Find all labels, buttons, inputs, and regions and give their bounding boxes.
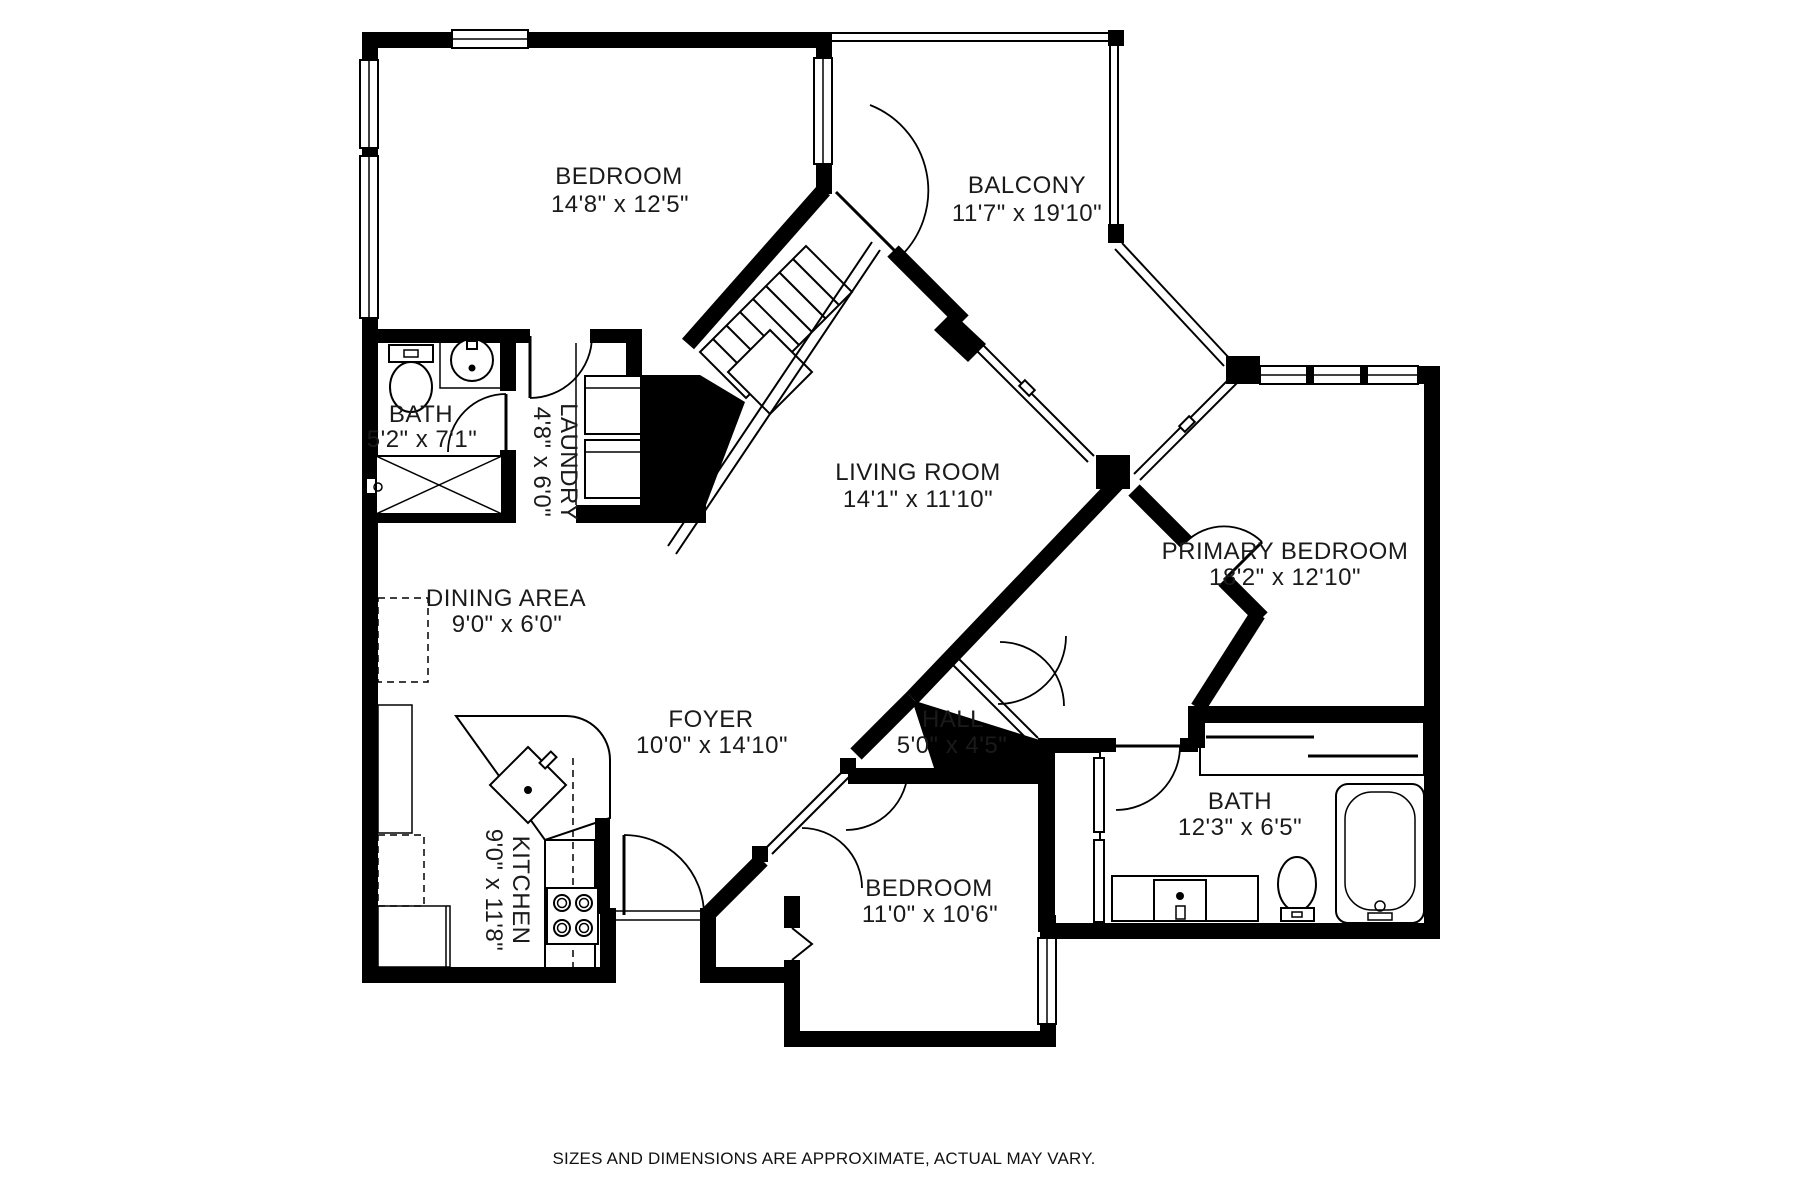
label-hall: HALL 5'0" x 4'5" xyxy=(897,706,1007,759)
linen-closet xyxy=(1054,752,1104,928)
bathtub-fixture xyxy=(1336,784,1424,923)
window-living-balcony xyxy=(964,332,1094,462)
svg-text:HALL: HALL xyxy=(922,706,984,733)
svg-text:10'0" x 14'10": 10'0" x 14'10" xyxy=(636,732,788,759)
svg-text:LIVING ROOM: LIVING ROOM xyxy=(835,459,1001,486)
window-bedroom2-right xyxy=(1038,938,1056,1024)
svg-text:PRIMARY BEDROOM: PRIMARY BEDROOM xyxy=(1162,538,1409,565)
floor-plan-canvas: BEDROOM 14'8" x 12'5" BALCONY 11'7" x 19… xyxy=(0,0,1800,1200)
door-foyer-closet-bifold xyxy=(792,928,812,960)
sink-fixture-bath1 xyxy=(440,339,500,388)
room-labels: BEDROOM 14'8" x 12'5" BALCONY 11'7" x 19… xyxy=(367,163,1409,951)
svg-text:18'2" x 12'10": 18'2" x 12'10" xyxy=(1209,564,1361,591)
svg-text:11'7" x 19'10": 11'7" x 19'10" xyxy=(952,200,1102,227)
svg-text:14'8" x 12'5": 14'8" x 12'5" xyxy=(551,191,689,218)
svg-text:BEDROOM: BEDROOM xyxy=(555,163,683,190)
door-bedroom2-sliders xyxy=(766,768,908,888)
window-primary-top xyxy=(1260,366,1418,384)
svg-text:4'8" x 6'0": 4'8" x 6'0" xyxy=(528,407,555,517)
label-dining-area: DINING AREA 9'0" x 6'0" xyxy=(426,585,586,638)
window-bedroom1-left-lower xyxy=(360,156,378,318)
label-bath1: BATH 5'2" x 7'1" xyxy=(367,401,477,453)
door-entry xyxy=(624,835,704,915)
door-balcony xyxy=(836,105,928,256)
svg-text:BATH: BATH xyxy=(1208,788,1272,815)
svg-text:FOYER: FOYER xyxy=(668,706,753,733)
dining-cabinets xyxy=(378,598,450,967)
label-foyer: FOYER 10'0" x 14'10" xyxy=(636,706,788,759)
primary-closet xyxy=(1200,722,1424,775)
label-laundry: LAUNDRY 4'8" x 6'0" xyxy=(528,403,582,521)
disclaimer-text: SIZES AND DIMENSIONS ARE APPROXIMATE, AC… xyxy=(553,1149,1096,1168)
label-bedroom2: BEDROOM 11'0" x 10'6" xyxy=(862,875,998,928)
svg-text:14'1" x 11'10": 14'1" x 11'10" xyxy=(843,486,993,513)
svg-text:5'2" x 7'1": 5'2" x 7'1" xyxy=(367,426,477,453)
window-primary-balcony xyxy=(1134,372,1242,480)
door-bath2 xyxy=(1116,746,1180,810)
label-living-room: LIVING ROOM 14'1" x 11'10" xyxy=(835,459,1001,513)
kitchen-sink xyxy=(490,747,566,823)
toilet-fixture-bath2 xyxy=(1278,857,1316,921)
label-bath2: BATH 12'3" x 6'5" xyxy=(1178,788,1302,841)
entry-sill xyxy=(616,911,704,920)
svg-text:9'0" x 6'0": 9'0" x 6'0" xyxy=(452,611,562,638)
svg-text:DINING AREA: DINING AREA xyxy=(426,585,586,612)
svg-text:5'0" x 4'5": 5'0" x 4'5" xyxy=(897,732,1007,759)
floor-plan-page: BEDROOM 14'8" x 12'5" BALCONY 11'7" x 19… xyxy=(0,0,1800,1200)
stove-fixture xyxy=(547,888,598,944)
label-bedroom1: BEDROOM 14'8" x 12'5" xyxy=(551,163,689,218)
window-bedroom1-left-upper xyxy=(360,60,378,148)
svg-text:BALCONY: BALCONY xyxy=(968,172,1086,199)
window-bedroom1-top xyxy=(452,30,528,48)
svg-text:9'0" x 11'8": 9'0" x 11'8" xyxy=(480,829,507,952)
svg-text:BEDROOM: BEDROOM xyxy=(865,875,993,902)
svg-text:11'0" x 10'6": 11'0" x 10'6" xyxy=(862,901,998,928)
svg-text:LAUNDRY: LAUNDRY xyxy=(555,403,582,521)
vanity-fixture-bath2 xyxy=(1112,876,1258,921)
label-primary-bedroom: PRIMARY BEDROOM 18'2" x 12'10" xyxy=(1162,538,1409,591)
label-balcony: BALCONY 11'7" x 19'10" xyxy=(952,172,1102,227)
shower-fixture-bath1 xyxy=(366,456,502,514)
window-bedroom1-right xyxy=(814,58,832,164)
label-kitchen: KITCHEN 9'0" x 11'8" xyxy=(480,829,534,952)
door-bedroom1 xyxy=(530,336,592,398)
svg-text:KITCHEN: KITCHEN xyxy=(507,836,534,945)
svg-text:12'3" x 6'5": 12'3" x 6'5" xyxy=(1178,814,1302,841)
svg-text:BATH: BATH xyxy=(389,401,453,428)
